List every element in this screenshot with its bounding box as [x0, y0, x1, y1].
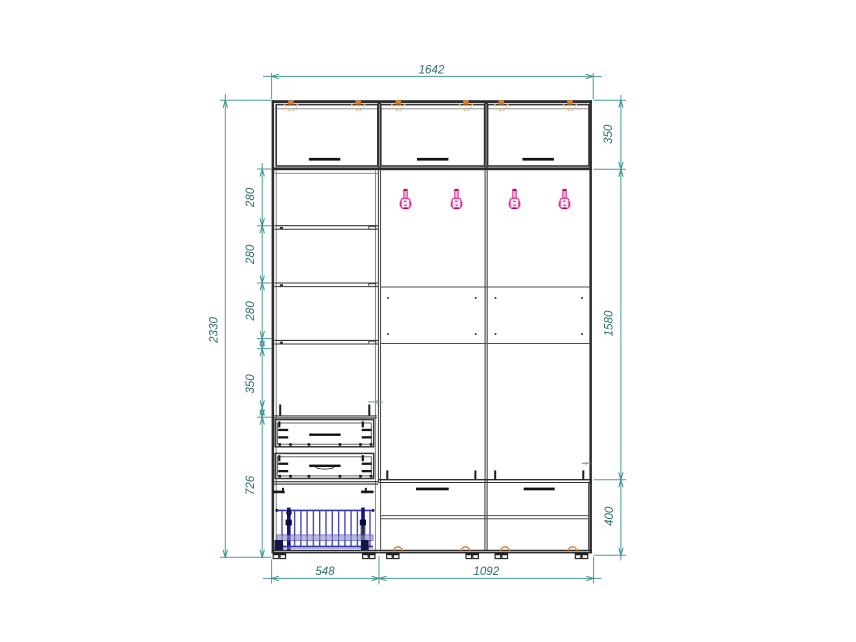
svg-text:2330: 2330: [208, 317, 221, 344]
svg-text:1092: 1092: [473, 565, 499, 578]
svg-text:280: 280: [244, 187, 257, 208]
svg-text:726: 726: [244, 475, 257, 495]
svg-text:1580: 1580: [602, 310, 615, 336]
svg-text:280: 280: [244, 244, 257, 265]
svg-text:548: 548: [315, 565, 335, 578]
svg-text:280: 280: [244, 301, 257, 322]
svg-text:350: 350: [244, 374, 257, 394]
svg-text:350: 350: [602, 124, 615, 144]
svg-text:1642: 1642: [419, 64, 445, 77]
svg-text:400: 400: [603, 506, 616, 526]
